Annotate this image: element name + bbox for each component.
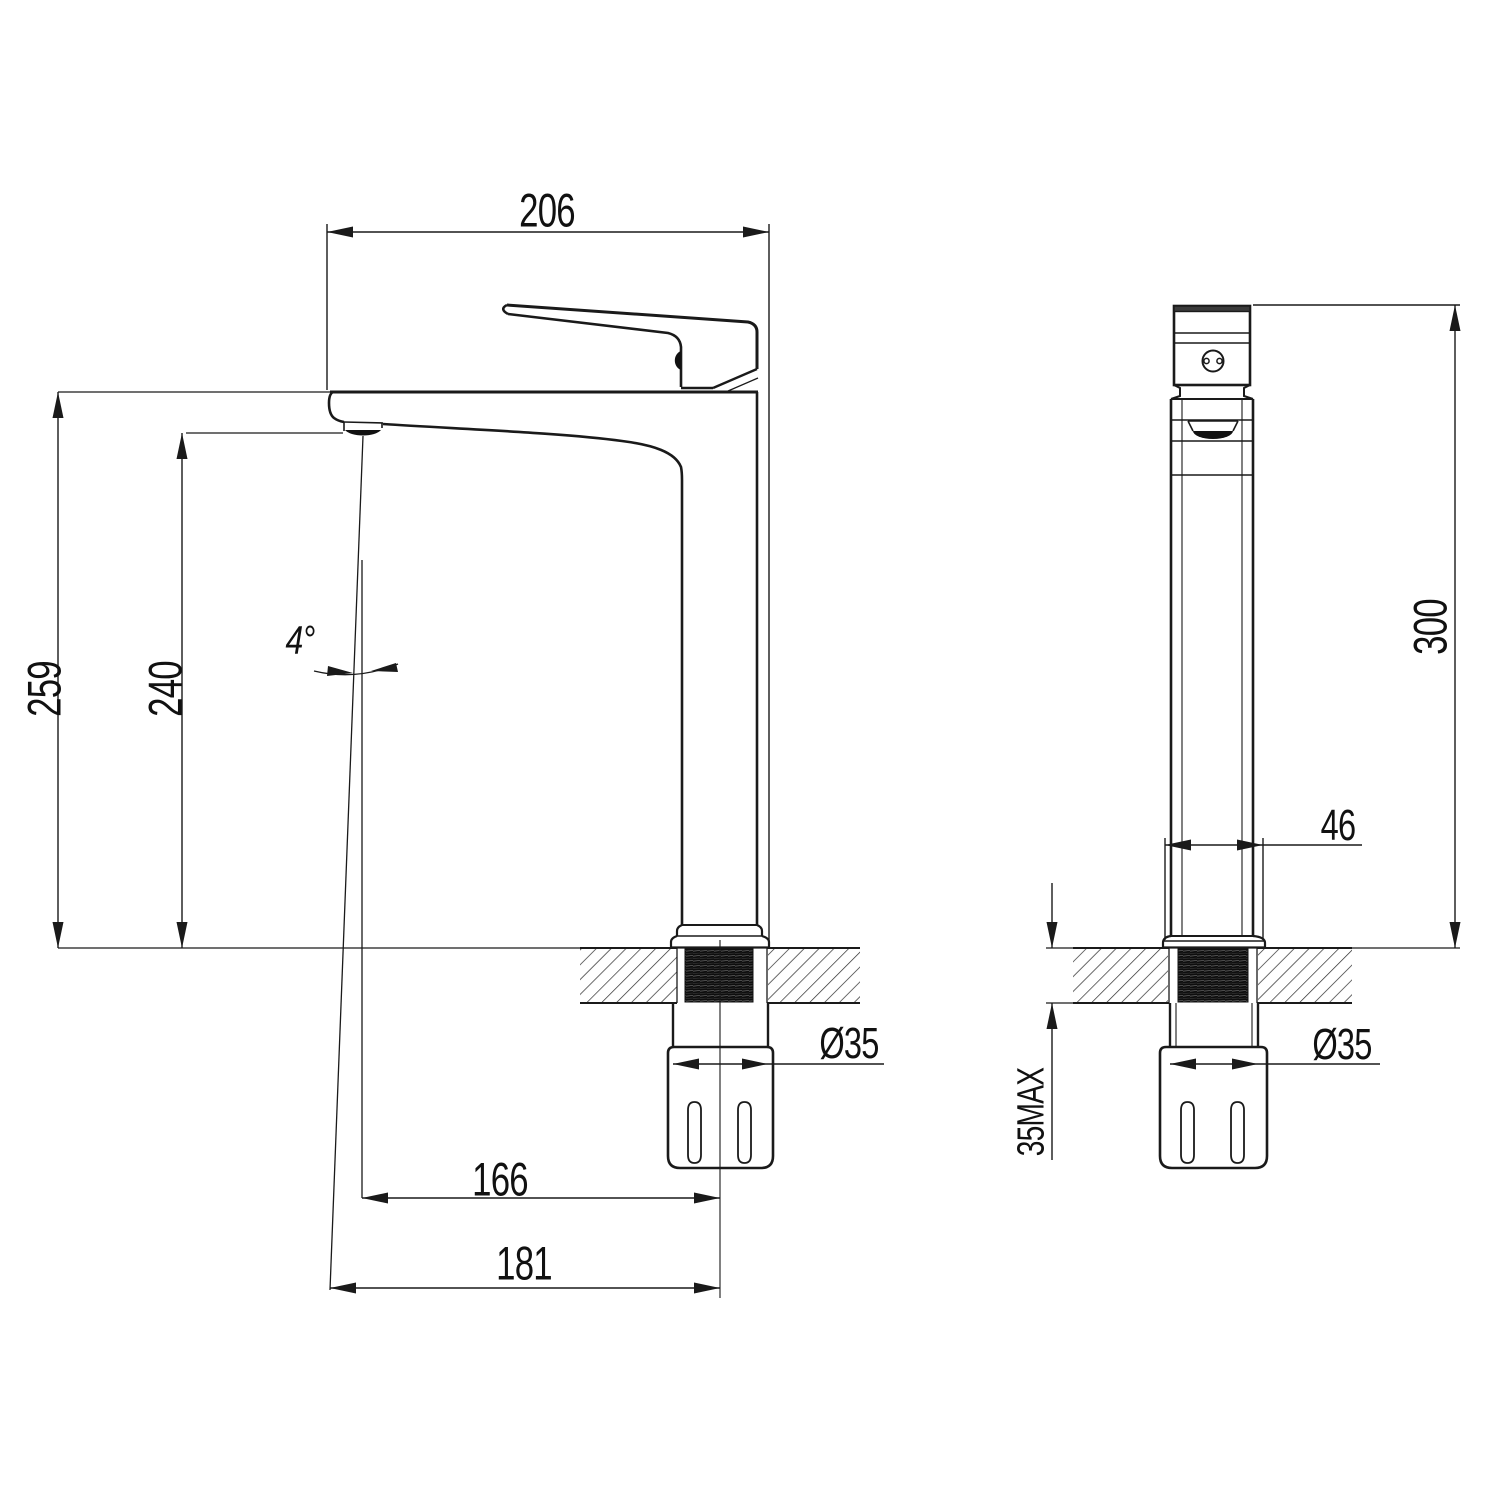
dim-side-counter-thickness-label: 35MAX [1011, 1068, 1054, 1157]
threaded-shank-front [685, 949, 753, 1002]
dim-front-reach-overall-label: 181 [496, 1236, 552, 1291]
faucet-side-view [1160, 306, 1267, 1168]
aerator-outlet-side [1193, 431, 1233, 439]
threaded-shank-side [1178, 949, 1248, 1002]
dim-front-width-label: 206 [519, 183, 575, 238]
countertop-side-view [1046, 948, 1460, 1003]
aerator-outlet [345, 430, 381, 435]
dim-side-thread-label: Ø35 [1312, 1020, 1371, 1070]
dim-side-body-width-label: 46 [1321, 801, 1356, 851]
handle-set-screw [675, 351, 681, 370]
dim-front-height-total-label: 259 [17, 661, 72, 717]
dim-front-angle-label: 4° [286, 619, 315, 664]
faucet-dimension-drawing [0, 0, 1500, 1500]
dimension-lines-front [53, 224, 885, 1298]
dim-side-height-label: 300 [1403, 599, 1458, 655]
dim-front-reach-spout-label: 166 [472, 1152, 528, 1207]
faucet-front-view [329, 305, 773, 1168]
dim-front-height-spout-label: 240 [138, 661, 193, 717]
dim-front-thread-label: Ø35 [819, 1019, 878, 1069]
handle-screw-cap [1203, 351, 1224, 372]
technical-drawing-page: 206 259 240 4° 166 181 Ø35 300 46 35MAX … [0, 0, 1500, 1500]
